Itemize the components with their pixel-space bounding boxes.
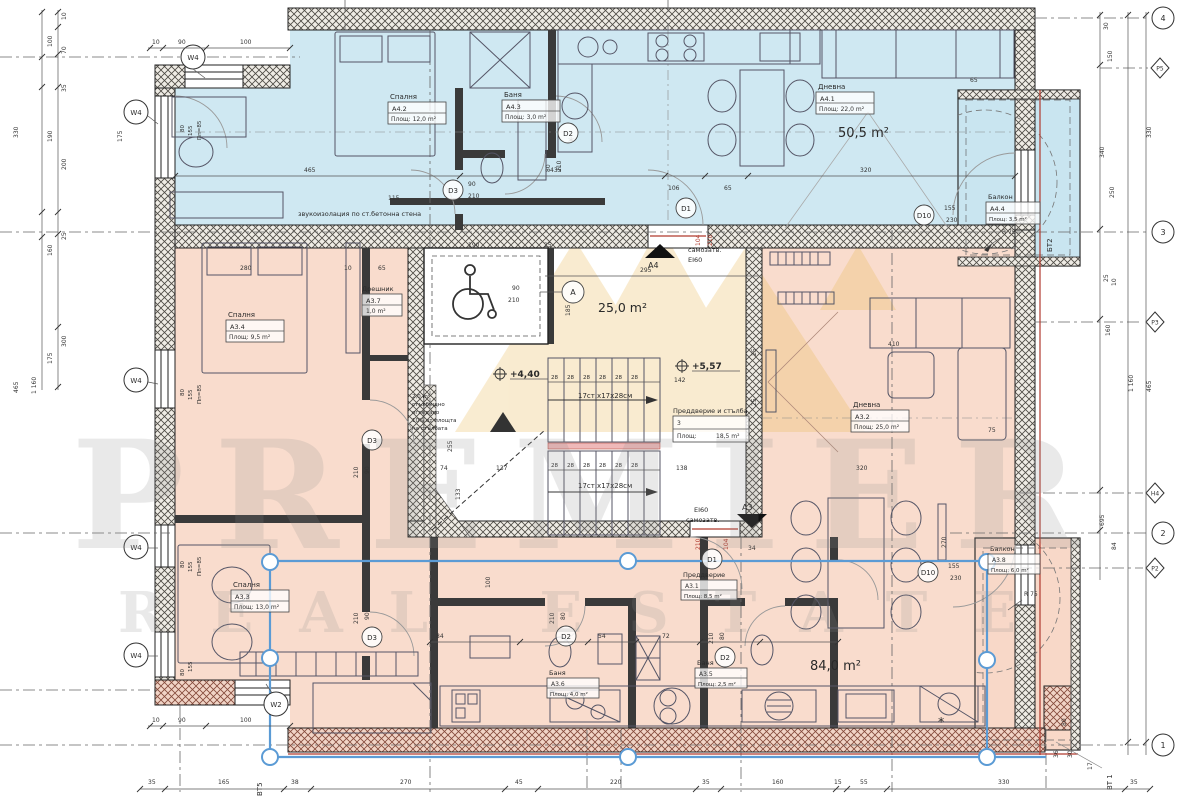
level-value: +4,40 <box>510 370 540 380</box>
dim-label: 210 <box>508 297 520 304</box>
dim-label: 90 <box>512 285 520 292</box>
dim-label: 165 <box>218 779 230 786</box>
room-area: Площ: 4,0 m² <box>550 691 588 698</box>
room-area: Площ: 9,5 m² <box>229 334 271 341</box>
dim-label: 142 <box>674 377 686 384</box>
door-id: D3 <box>448 187 458 195</box>
fire-rating: EI60 <box>688 256 702 264</box>
dim-label: 30 <box>1103 22 1110 30</box>
total-area-a3: 84,0 m² <box>810 659 861 674</box>
dim-label: 300 <box>61 335 68 347</box>
room-id: A3.4 <box>230 323 245 331</box>
dim-label: 465 <box>304 167 316 174</box>
dim-label: 80 <box>1061 718 1068 726</box>
dim-label: 280 <box>240 265 252 272</box>
dim-label: 270 <box>400 779 412 786</box>
section-id-bt1: ВТ 1 <box>1106 774 1114 790</box>
window-id: W4 <box>187 54 199 62</box>
room-name: Дрешник <box>362 285 394 293</box>
dim-label: 25 <box>1103 274 1110 282</box>
grid-id: 1 <box>1160 741 1165 750</box>
dim-label: 160 <box>772 779 784 786</box>
note-line: 2,0 m² <box>412 393 430 400</box>
dim-label: 1 160 <box>31 377 38 394</box>
room-area: Площ: 2,5 m² <box>698 681 736 688</box>
dim-label: 10 <box>61 12 68 20</box>
watermark-line2: REAL ESTATE <box>118 580 1062 646</box>
dim-label: 10 <box>152 39 160 46</box>
dim-label: 25 <box>751 348 758 356</box>
door-dim: 90 <box>468 181 476 188</box>
grid-4: 4 <box>1152 7 1174 29</box>
level-value: +5,57 <box>692 362 722 372</box>
dim-label: 340 <box>1099 146 1106 158</box>
grid-id: Р3 <box>1151 320 1159 327</box>
dim-label: 28 <box>615 375 622 381</box>
total-area-a4: 50,5 m² <box>838 126 889 141</box>
door-id: D1 <box>681 205 691 213</box>
room-name: Балкон <box>988 193 1013 201</box>
dim-label: 330 <box>998 779 1010 786</box>
grid-p5: Р5 <box>1151 58 1169 78</box>
dim-label: 106 <box>668 185 680 192</box>
dim-label: 295 <box>640 267 652 274</box>
grid-p3: Р3 <box>1146 312 1164 332</box>
room-area: 1,0 m² <box>366 308 386 315</box>
grid-id: Р5 <box>1156 66 1164 73</box>
room-id: A3.5 <box>699 671 713 678</box>
dim-label: 10 <box>152 717 160 724</box>
dim-label: 70 <box>61 46 68 54</box>
grid-2: 2 <box>1152 522 1174 544</box>
dim-label: 28 <box>567 375 574 381</box>
room-name: Дневна <box>818 83 845 91</box>
star-symbol: * <box>938 714 944 729</box>
door-id: D10 <box>917 212 931 220</box>
dim-label: 190 <box>47 130 54 142</box>
dim-label: 35 <box>702 779 710 786</box>
dim-label: 25 <box>751 398 758 406</box>
dim-label: 190 <box>468 242 480 249</box>
dim-label: 17 <box>1087 762 1094 770</box>
grid-id: 2 <box>1160 529 1165 538</box>
floor-plan-drawing: СпалняA4.2Площ: 12,0 m² БаняA4.3Площ: 3,… <box>0 0 1180 800</box>
dim-label: 38 <box>291 779 299 786</box>
dim-label: 35 <box>1130 779 1138 786</box>
dim-label: 28 <box>551 375 558 381</box>
sill-dim: 80 <box>180 669 186 676</box>
dim-label: 320 <box>860 167 872 174</box>
dim-label: 330 <box>1146 126 1153 138</box>
door-dim: 210 <box>468 193 480 200</box>
win-w4-3: W4 <box>124 368 158 392</box>
stair-note-1: 17ст.х17х28см <box>578 392 632 400</box>
dim-label: 55 <box>860 779 868 786</box>
dim-label: 1 160 <box>1128 375 1135 392</box>
dim-label: 185 <box>565 304 572 316</box>
dim-label: 30 <box>1067 750 1074 758</box>
marker-letter: A <box>570 288 576 297</box>
sill-dim: 80 <box>180 125 186 132</box>
parapet-note: Пп=85 <box>197 384 203 404</box>
dim-label: 250 <box>1109 186 1116 198</box>
dim-label: 28 <box>631 375 638 381</box>
grid-id: Н4 <box>1151 491 1160 498</box>
dim-label: 150 <box>1107 50 1114 62</box>
radius-label: R 75 <box>1002 229 1016 236</box>
dim-label: 28 <box>583 375 590 381</box>
dim-label: 100 <box>240 39 252 46</box>
dim-label: 65 <box>970 77 978 84</box>
dim-label: 220 <box>610 779 622 786</box>
dim-label: 65 <box>724 185 732 192</box>
win-w4-2: W4 <box>124 100 158 124</box>
door-id: D2 <box>563 130 573 138</box>
grid-id: 4 <box>1160 14 1165 23</box>
room-name: Спалня <box>390 93 417 101</box>
dim-label: 84 <box>1111 542 1118 550</box>
window-w4-c <box>155 350 175 408</box>
dim-label: 65 <box>378 265 386 272</box>
dim-label: 10 <box>1111 278 1118 286</box>
dim-label: 200 <box>61 158 68 170</box>
floor-plan-page: СпалняA4.2Площ: 12,0 m² БаняA4.3Площ: 3,… <box>0 0 1180 800</box>
parapet-note: Пп=85 <box>197 120 203 140</box>
window-id: W4 <box>130 109 142 117</box>
elevator <box>424 248 548 344</box>
room-area: Площ: 3,5 m² <box>989 216 1027 223</box>
dim-label: 435 <box>550 167 562 174</box>
room-area: Площ: 12,0 m² <box>391 116 437 123</box>
dim-label: 90 <box>178 717 186 724</box>
dim-label: 465 <box>1146 380 1153 392</box>
room-id: A4.2 <box>392 105 407 113</box>
dim-label: 36 <box>1053 750 1060 758</box>
dim-label: 10 <box>344 265 352 272</box>
selfclose: самозатв. <box>688 246 722 254</box>
room-name: Баня <box>549 669 566 677</box>
room-name: Спалня <box>228 311 255 319</box>
dim-label: 465 <box>13 381 20 393</box>
dim-label: 25 <box>61 232 68 240</box>
watermark-line1: PREMIER <box>72 408 1109 584</box>
dim-label: 175 <box>47 352 54 364</box>
dim-label: 410 <box>888 341 900 348</box>
window-id: W4 <box>130 652 142 660</box>
room-area: Площ: 22,0 m² <box>819 106 865 113</box>
sill-dim: 80 <box>180 389 186 396</box>
dim-label: 45 <box>515 779 523 786</box>
grid-3: 3 <box>1152 221 1174 243</box>
window-id: W2 <box>270 701 281 709</box>
door-dim: 230 <box>946 217 958 224</box>
dim-label: 35 <box>148 779 156 786</box>
sound-insulation-note: звукоизолация по ст.бетонна стена <box>298 210 421 218</box>
dim-label: 100 <box>240 717 252 724</box>
room-id: A4.4 <box>990 205 1005 213</box>
room-name: Баня <box>697 659 714 667</box>
room-id: A4.1 <box>820 95 835 103</box>
dim-label: 175 <box>117 130 124 142</box>
dim-label: 25 <box>544 242 552 249</box>
dim-label: 100 <box>47 35 54 47</box>
room-name: Баня <box>504 91 522 99</box>
grid-p2: Р2 <box>1146 558 1164 578</box>
door-dim: 104 <box>695 234 702 246</box>
room-id: A3.7 <box>366 297 381 305</box>
dim-label: 330 <box>13 126 20 138</box>
dim-label: 35 <box>61 84 68 92</box>
dim-label: 160 <box>47 244 54 256</box>
sill-dim: 155 <box>188 389 194 400</box>
dim-label: 90 <box>178 39 186 46</box>
core-area: 25,0 m² <box>598 300 647 315</box>
sill-dim: 155 <box>188 125 194 136</box>
door-dim: 210 <box>707 234 714 246</box>
room-id: A4.3 <box>506 103 521 111</box>
dim-label: 28 <box>599 375 606 381</box>
grid-id: Р2 <box>1151 566 1159 573</box>
dim-label: 115 <box>388 195 400 202</box>
grid-h4: Н4 <box>1146 483 1164 503</box>
watermark-text: PREMIER REAL ESTATE <box>72 408 1109 646</box>
sill-dim: 155 <box>188 661 194 672</box>
door-dim: 155 <box>944 205 956 212</box>
grid-1: 1 <box>1152 734 1174 756</box>
room-area: Площ: 3,0 m² <box>505 114 547 121</box>
grid-id: 3 <box>1160 228 1165 237</box>
door-id: D2 <box>720 654 730 662</box>
room-id: A3.6 <box>551 681 565 688</box>
dim-label: 160 <box>1105 324 1112 336</box>
dim-label: 15 <box>834 779 842 786</box>
window-id: W4 <box>130 377 142 385</box>
win-w4-5: W4 <box>124 643 158 667</box>
section-id-bt2: БТ2 <box>1046 238 1054 252</box>
